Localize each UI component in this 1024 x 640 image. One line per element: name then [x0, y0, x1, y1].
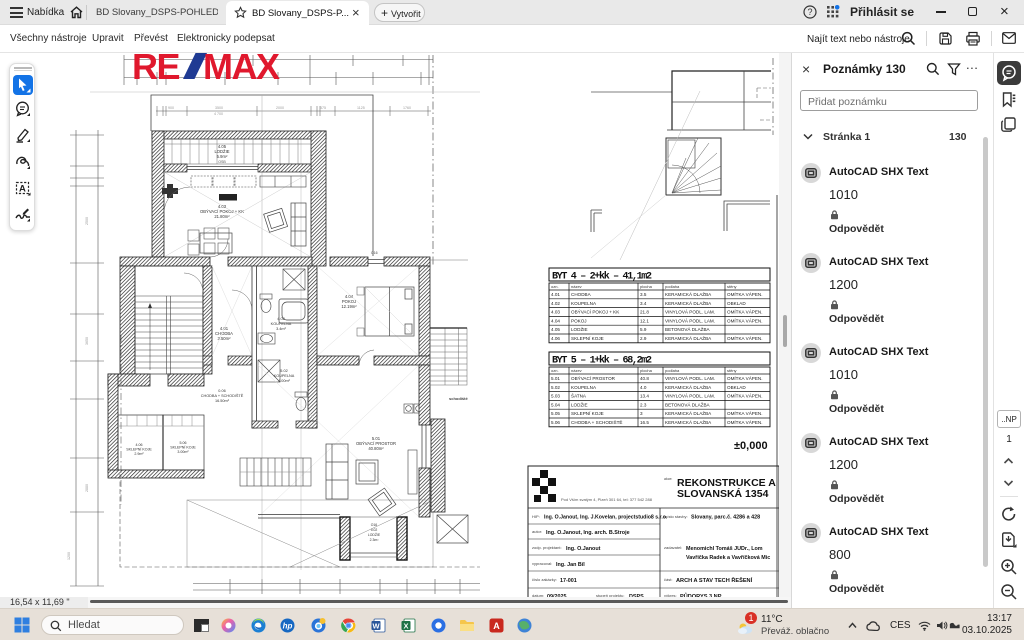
svg-text:OMÍTKA VÁPEN.: OMÍTKA VÁPEN. — [727, 419, 762, 425]
svg-text:RE: RE — [132, 53, 179, 87]
svg-text:1125: 1125 — [357, 106, 365, 110]
svg-text:DSPS: DSPS — [629, 594, 644, 597]
svg-text:21.80m²: 21.80m² — [214, 214, 230, 219]
svg-text:BETONOVÁ DLAŽBA: BETONOVÁ DLAŽBA — [665, 325, 711, 332]
svg-text:název: název — [571, 284, 582, 289]
svg-text:PŮDORYS 3 NP: PŮDORYS 3 NP — [680, 592, 722, 597]
svg-text:SLOVANSKÁ 1354: SLOVANSKÁ 1354 — [677, 487, 769, 500]
svg-text:5.03: 5.03 — [551, 394, 560, 399]
svg-text:900: 900 — [168, 106, 174, 110]
svg-text:O16: O16 — [371, 251, 378, 255]
svg-text:3.00m²: 3.00m² — [177, 450, 189, 454]
svg-text:4.06: 4.06 — [551, 336, 560, 341]
svg-text:5.06: 5.06 — [180, 441, 187, 445]
svg-text:2880: 2880 — [85, 484, 89, 492]
svg-text:plocha: plocha — [640, 368, 653, 373]
svg-text:09/2025: 09/2025 — [547, 594, 567, 597]
svg-text:číslo zakázky:: číslo zakázky: — [532, 577, 557, 582]
svg-text:A: A — [19, 184, 26, 195]
svg-text:KOUPELNA: KOUPELNA — [571, 301, 597, 306]
svg-text:část:: část: — [664, 577, 672, 582]
svg-text:datum:: datum: — [532, 593, 544, 597]
svg-text:MAX: MAX — [203, 53, 280, 87]
svg-text:2000: 2000 — [276, 106, 284, 110]
svg-text:W: W — [372, 622, 380, 631]
svg-text:název: název — [571, 368, 582, 373]
svg-text:podlaha: podlaha — [665, 284, 680, 289]
svg-text:ŠATNA: ŠATNA — [571, 393, 587, 399]
svg-text:X: X — [403, 622, 408, 631]
svg-text:LODŽIE: LODŽIE — [571, 325, 588, 332]
svg-text:4 700: 4 700 — [214, 112, 223, 116]
svg-text:OMÍTKA VÁPEN.: OMÍTKA VÁPEN. — [727, 317, 762, 323]
svg-text:ARCH A STAV TECH ŘEŠENÍ: ARCH A STAV TECH ŘEŠENÍ — [676, 576, 753, 584]
svg-text:plocha: plocha — [640, 284, 653, 289]
svg-text:5.05: 5.05 — [551, 411, 560, 416]
svg-text:2.3: 2.3 — [640, 402, 647, 407]
svg-text:4.06: 4.06 — [136, 443, 143, 447]
svg-text:KERAMICKÁ DLAŽBA: KERAMICKÁ DLAŽBA — [665, 299, 712, 306]
svg-text:Ing. Jan Bíl: Ing. Jan Bíl — [556, 562, 585, 568]
svg-text:OBÝVACÍ PROSTOR: OBÝVACÍ PROSTOR — [571, 375, 616, 381]
svg-text:KERAMICKÁ DLAŽBA: KERAMICKÁ DLAŽBA — [665, 334, 712, 341]
svg-text:5.02: 5.02 — [551, 385, 560, 390]
svg-text:místo stavby:: místo stavby: — [664, 514, 688, 519]
svg-text:CHODBA + SCHODIŠTĚ: CHODBA + SCHODIŠTĚ — [571, 418, 622, 425]
svg-text:OMÍTKA VÁPEN.: OMÍTKA VÁPEN. — [727, 393, 762, 399]
svg-text:OBKLAD: OBKLAD — [727, 385, 746, 390]
svg-text:KERAMICKÁ DLAŽBA: KERAMICKÁ DLAŽBA — [665, 409, 712, 416]
svg-text:OMÍTKA VÁPEN.: OMÍTKA VÁPEN. — [727, 375, 762, 381]
svg-text:±0,000: ±0,000 — [734, 440, 768, 452]
svg-text:4.02: 4.02 — [551, 301, 560, 306]
svg-text:17-001: 17-001 — [560, 578, 577, 584]
svg-text:OMÍTKA VÁPEN.: OMÍTKA VÁPEN. — [727, 335, 762, 341]
svg-text:KERAMICKÁ DLAŽBA: KERAMICKÁ DLAŽBA — [665, 383, 712, 390]
svg-text:VINYLOVÁ PODL. LAM.: VINYLOVÁ PODL. LAM. — [665, 317, 715, 323]
svg-text:stěny: stěny — [727, 368, 737, 373]
svg-text:3650: 3650 — [85, 337, 89, 345]
svg-text:autor:: autor: — [532, 529, 542, 534]
svg-text:stupeň projektu:: stupeň projektu: — [596, 593, 624, 597]
svg-text:POKOJ: POKOJ — [571, 318, 587, 323]
svg-text:LODŽIE: LODŽIE — [368, 532, 381, 537]
svg-text:Menomichl Tomáš JUDr., Lom: Menomichl Tomáš JUDr., Lom — [686, 546, 763, 552]
svg-text:HIP:: HIP: — [532, 514, 540, 519]
svg-text:KOUPELNA: KOUPELNA — [571, 385, 597, 390]
svg-text:Pod Vším svatým 4, Plzeň 301 6: Pod Vším svatým 4, Plzeň 301 64, tel: 37… — [561, 497, 653, 502]
svg-text:12.1: 12.1 — [640, 318, 649, 323]
svg-text:KOUPELNA: KOUPELNA — [271, 322, 292, 326]
svg-text:SKLEPNÍ KOJE: SKLEPNÍ KOJE — [170, 446, 196, 450]
svg-text:Ing. O.Janout, Ing. arch. B.St: Ing. O.Janout, Ing. arch. B.Stroje — [546, 530, 630, 536]
svg-text:výkres:: výkres: — [664, 593, 677, 597]
svg-text:3: 3 — [640, 411, 643, 416]
svg-text:3.5: 3.5 — [640, 292, 647, 297]
svg-text:OMÍTKA VÁPEN.: OMÍTKA VÁPEN. — [727, 309, 762, 315]
svg-text:VINYLOVÁ PODL. LAM.: VINYLOVÁ PODL. LAM. — [665, 393, 715, 399]
svg-text:ozn.: ozn. — [551, 368, 559, 373]
svg-text:4.0: 4.0 — [640, 385, 647, 390]
svg-text:16.50m²: 16.50m² — [215, 399, 230, 403]
svg-text:ozn.: ozn. — [551, 284, 559, 289]
svg-text:0.06: 0.06 — [218, 389, 225, 393]
svg-text:CHODBA + SCHODIŠTĚ: CHODBA + SCHODIŠTĚ — [201, 393, 244, 398]
svg-text:OSB: OSB — [218, 160, 226, 164]
svg-text:KOUPELNA: KOUPELNA — [274, 374, 295, 378]
svg-text:12.19m²: 12.19m² — [341, 304, 357, 309]
svg-text:schodiště: schodiště — [449, 396, 468, 401]
svg-text:16.5: 16.5 — [640, 420, 649, 425]
svg-text:VINYLOVÁ PODL. LAM.: VINYLOVÁ PODL. LAM. — [665, 309, 715, 315]
svg-text:2.9: 2.9 — [640, 336, 647, 341]
svg-text:akce:: akce: — [664, 477, 672, 481]
svg-text:podlaha: podlaha — [665, 368, 680, 373]
svg-text:5.02: 5.02 — [280, 369, 287, 373]
svg-text:SKLEPNÍ KOJE: SKLEPNÍ KOJE — [126, 448, 152, 452]
svg-text:OMÍTKA VÁPEN.: OMÍTKA VÁPEN. — [727, 291, 762, 297]
svg-text:OBKLAD: OBKLAD — [727, 301, 746, 306]
svg-text:21.8: 21.8 — [640, 310, 649, 315]
svg-text:3500: 3500 — [215, 106, 223, 110]
svg-text:OBÝVACÍ POKOJ + KK: OBÝVACÍ POKOJ + KK — [571, 309, 620, 315]
svg-text:VINYLOVÁ PODL. LAM.: VINYLOVÁ PODL. LAM. — [665, 375, 715, 381]
svg-text:Ing. O.Janout: Ing. O.Janout — [566, 546, 601, 552]
svg-text:40.80m²: 40.80m² — [368, 446, 384, 451]
svg-text:575: 575 — [320, 106, 326, 110]
svg-text:5.04: 5.04 — [551, 402, 560, 407]
svg-text:2500: 2500 — [85, 217, 89, 225]
svg-text:BYT 5 – 1+kk – 68,2m2: BYT 5 – 1+kk – 68,2m2 — [552, 355, 652, 367]
svg-text:zadavatel:: zadavatel: — [664, 545, 682, 550]
svg-text:1200: 1200 — [67, 552, 71, 560]
svg-text:13.4: 13.4 — [640, 394, 649, 399]
svg-text:BYT 4 – 2+kk – 41,1m2: BYT 4 – 2+kk – 41,1m2 — [552, 271, 652, 283]
svg-text:Slovany, parc.č. 4286 a 428: Slovany, parc.č. 4286 a 428 — [691, 515, 760, 521]
svg-text:zodp. projektant:: zodp. projektant: — [532, 545, 562, 550]
svg-text:CHODBA: CHODBA — [571, 292, 592, 297]
svg-text:4.03: 4.03 — [551, 310, 560, 315]
svg-text:vypracoval:: vypracoval: — [532, 561, 552, 566]
svg-text:KERAMICKÁ DLAŽBA: KERAMICKÁ DLAŽBA — [665, 290, 712, 297]
svg-text:3.4m²: 3.4m² — [276, 327, 286, 331]
svg-text:hp: hp — [283, 622, 293, 631]
svg-text:stěny: stěny — [727, 284, 737, 289]
svg-text:2.3m²: 2.3m² — [370, 538, 380, 542]
svg-text:KERAMICKÁ DLAŽBA: KERAMICKÁ DLAŽBA — [665, 418, 712, 425]
svg-text:2.9m²: 2.9m² — [134, 452, 144, 456]
svg-text:4.05: 4.05 — [551, 327, 560, 332]
svg-text:5.9: 5.9 — [640, 327, 647, 332]
svg-text:4.01: 4.01 — [551, 292, 560, 297]
svg-text:4.04: 4.04 — [551, 318, 560, 323]
svg-text:5.06: 5.06 — [551, 420, 560, 425]
svg-text:Vavřička Radek a Vavříčková Mi: Vavřička Radek a Vavříčková Mic — [686, 555, 770, 561]
svg-text:5.9m²: 5.9m² — [217, 154, 228, 159]
svg-text:BETONOVÁ DLAŽBA: BETONOVÁ DLAŽBA — [665, 400, 711, 407]
svg-text:?: ? — [807, 7, 812, 17]
svg-text:Ing. O.Janout, Ing. J.Kovelan,: Ing. O.Janout, Ing. J.Kovelan, projectst… — [544, 515, 668, 521]
svg-text:LODŽIE: LODŽIE — [571, 400, 588, 407]
svg-text:1760: 1760 — [403, 106, 411, 110]
svg-text:SKLEPNÍ KOJE: SKLEPNÍ KOJE — [571, 335, 604, 341]
svg-text:A: A — [493, 621, 500, 631]
svg-text:SKLEPNÍ KOJE: SKLEPNÍ KOJE — [571, 410, 604, 416]
svg-text:40.8: 40.8 — [640, 376, 649, 381]
svg-text:OMÍTKA VÁPEN.: OMÍTKA VÁPEN. — [727, 410, 762, 416]
svg-text:5.01: 5.01 — [551, 376, 560, 381]
svg-text:3.4: 3.4 — [640, 301, 647, 306]
